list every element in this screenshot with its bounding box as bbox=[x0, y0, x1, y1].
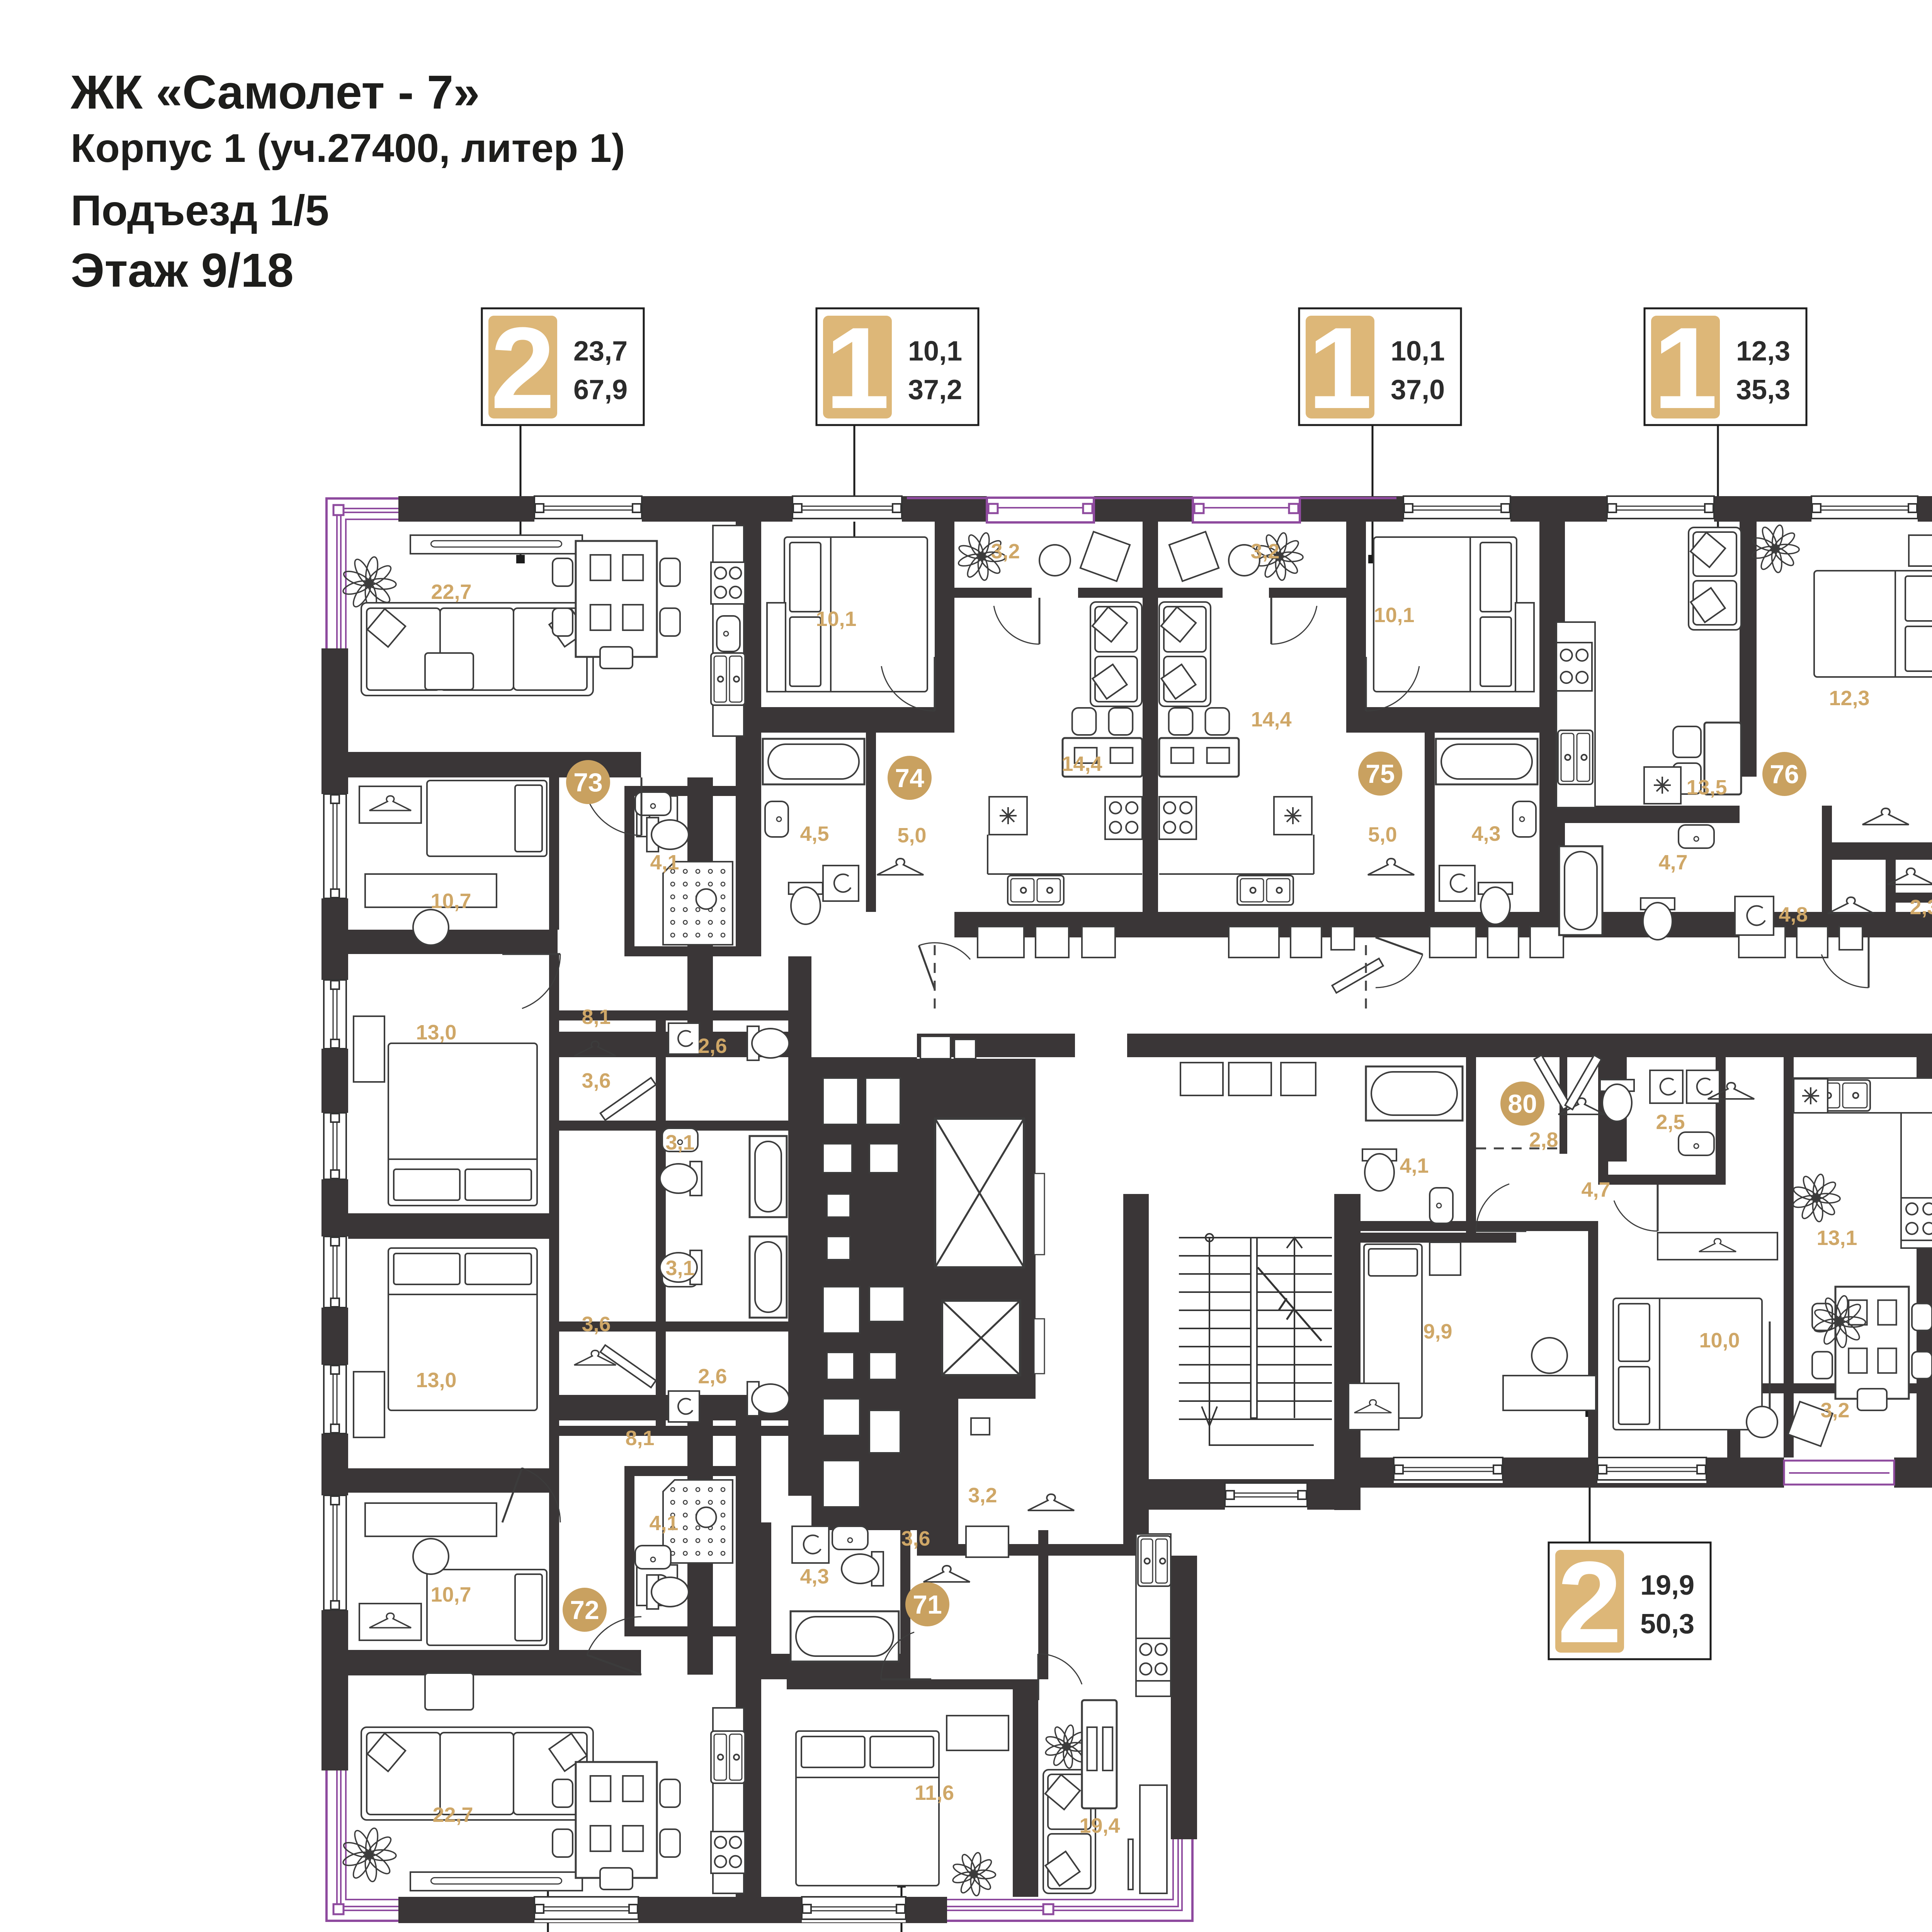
svg-text:4,7: 4,7 bbox=[1581, 1178, 1610, 1201]
svg-text:Корпус 1 (уч.27400, литер 1): Корпус 1 (уч.27400, литер 1) bbox=[71, 126, 625, 171]
svg-text:2: 2 bbox=[1558, 1537, 1622, 1667]
svg-text:73: 73 bbox=[573, 768, 603, 797]
svg-text:10,1: 10,1 bbox=[1374, 604, 1414, 627]
svg-text:10,1: 10,1 bbox=[816, 607, 856, 631]
svg-text:19,4: 19,4 bbox=[1079, 1814, 1120, 1837]
svg-text:11,6: 11,6 bbox=[915, 1781, 954, 1804]
svg-text:9,9: 9,9 bbox=[1423, 1320, 1452, 1343]
svg-text:10,7: 10,7 bbox=[430, 1583, 471, 1606]
svg-text:3,2: 3,2 bbox=[968, 1484, 997, 1507]
svg-text:71: 71 bbox=[913, 1590, 942, 1619]
svg-text:4,3: 4,3 bbox=[1471, 822, 1500, 845]
svg-text:37,0: 37,0 bbox=[1391, 374, 1445, 405]
svg-text:4,1: 4,1 bbox=[649, 1512, 678, 1535]
svg-text:72: 72 bbox=[570, 1595, 599, 1625]
svg-text:4,5: 4,5 bbox=[800, 822, 829, 845]
svg-text:12,3: 12,3 bbox=[1829, 687, 1869, 710]
svg-text:3,2: 3,2 bbox=[1820, 1399, 1849, 1422]
svg-text:3,2: 3,2 bbox=[991, 540, 1020, 563]
svg-text:3,1: 3,1 bbox=[665, 1131, 694, 1154]
svg-text:1: 1 bbox=[1308, 303, 1372, 433]
svg-text:22,7: 22,7 bbox=[432, 1803, 473, 1827]
svg-text:2,6: 2,6 bbox=[698, 1365, 727, 1388]
svg-text:35,3: 35,3 bbox=[1736, 374, 1790, 405]
svg-text:14,4: 14,4 bbox=[1061, 752, 1102, 776]
svg-text:8,1: 8,1 bbox=[582, 1005, 611, 1029]
svg-text:22,7: 22,7 bbox=[431, 580, 471, 604]
svg-text:13,5: 13,5 bbox=[1686, 776, 1727, 799]
svg-text:10,7: 10,7 bbox=[430, 889, 471, 913]
svg-text:4,8: 4,8 bbox=[1779, 903, 1808, 926]
svg-text:10,0: 10,0 bbox=[1699, 1329, 1740, 1352]
svg-text:12,3: 12,3 bbox=[1736, 336, 1790, 367]
svg-text:5,0: 5,0 bbox=[897, 824, 926, 847]
svg-text:2,6: 2,6 bbox=[698, 1034, 727, 1058]
svg-text:4,1: 4,1 bbox=[1400, 1154, 1429, 1177]
svg-text:3,6: 3,6 bbox=[901, 1527, 930, 1550]
svg-text:4,7: 4,7 bbox=[1658, 851, 1687, 874]
svg-text:10,1: 10,1 bbox=[1391, 336, 1445, 367]
svg-text:50,3: 50,3 bbox=[1640, 1609, 1694, 1639]
svg-text:13,1: 13,1 bbox=[1816, 1226, 1857, 1250]
svg-text:5,0: 5,0 bbox=[1368, 823, 1397, 846]
svg-text:4,1: 4,1 bbox=[650, 851, 679, 874]
svg-text:76: 76 bbox=[1770, 760, 1799, 789]
svg-text:13,0: 13,0 bbox=[416, 1021, 456, 1044]
svg-text:3,2: 3,2 bbox=[1250, 540, 1279, 563]
svg-text:3,6: 3,6 bbox=[582, 1313, 611, 1336]
svg-text:2,3: 2,3 bbox=[1910, 896, 1932, 919]
svg-text:1: 1 bbox=[1653, 303, 1718, 433]
svg-text:8,1: 8,1 bbox=[625, 1427, 654, 1450]
svg-text:74: 74 bbox=[895, 764, 924, 793]
svg-text:19,9: 19,9 bbox=[1640, 1570, 1694, 1601]
svg-text:3,1: 3,1 bbox=[665, 1257, 694, 1280]
svg-text:2,8: 2,8 bbox=[1529, 1128, 1558, 1151]
svg-text:75: 75 bbox=[1366, 759, 1395, 789]
svg-text:4,3: 4,3 bbox=[800, 1565, 829, 1588]
svg-text:Подъезд 1/5: Подъезд 1/5 bbox=[71, 187, 329, 235]
svg-text:10,1: 10,1 bbox=[908, 336, 962, 367]
svg-text:2: 2 bbox=[491, 303, 555, 433]
svg-text:13,0: 13,0 bbox=[416, 1369, 456, 1392]
svg-text:80: 80 bbox=[1508, 1089, 1537, 1119]
svg-text:37,2: 37,2 bbox=[908, 374, 962, 405]
svg-text:2,5: 2,5 bbox=[1656, 1111, 1685, 1134]
svg-text:23,7: 23,7 bbox=[573, 336, 628, 367]
svg-text:3,6: 3,6 bbox=[582, 1069, 611, 1092]
svg-text:67,9: 67,9 bbox=[573, 374, 628, 405]
svg-text:14,4: 14,4 bbox=[1251, 708, 1291, 731]
svg-text:Этаж 9/18: Этаж 9/18 bbox=[71, 244, 294, 297]
svg-text:ЖК «Самолет - 7»: ЖК «Самолет - 7» bbox=[70, 66, 480, 119]
svg-text:1: 1 bbox=[825, 303, 890, 433]
